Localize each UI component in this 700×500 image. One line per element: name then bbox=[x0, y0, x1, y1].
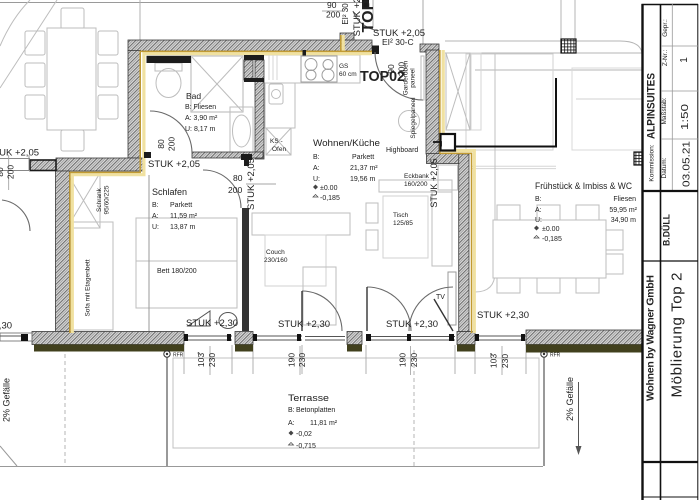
svg-text:A: 3,90 m²: A: 3,90 m² bbox=[185, 115, 218, 122]
svg-text:U:: U: bbox=[313, 176, 320, 183]
svg-text:U:: U: bbox=[152, 224, 159, 231]
svg-text:B:: B: bbox=[535, 196, 542, 203]
svg-text:Garderoben: Garderoben bbox=[403, 60, 410, 95]
svg-text:190: 190 bbox=[398, 353, 408, 367]
svg-text:ALPINSUITES: ALPINSUITES bbox=[646, 73, 658, 139]
svg-text:RFR: RFR bbox=[173, 353, 184, 359]
svg-text:EI² 30: EI² 30 bbox=[341, 3, 350, 25]
svg-text:59,95 m²: 59,95 m² bbox=[609, 207, 637, 214]
svg-text:-0,185: -0,185 bbox=[320, 195, 340, 202]
svg-text:Ofen: Ofen bbox=[272, 146, 286, 153]
svg-text:-0,02: -0,02 bbox=[296, 431, 312, 438]
svg-text:±0.00: ±0.00 bbox=[320, 185, 338, 192]
svg-text:RFR: RFR bbox=[550, 353, 561, 359]
svg-text:34,90 m: 34,90 m bbox=[611, 217, 636, 224]
svg-text:STUK +2,30: STUK +2,30 bbox=[386, 319, 438, 330]
svg-text:103̽: 103̽ bbox=[489, 353, 499, 368]
svg-text:1:50: 1:50 bbox=[679, 104, 691, 130]
svg-text:B:: B: bbox=[288, 407, 295, 414]
svg-text:230: 230 bbox=[409, 353, 419, 367]
svg-text:200: 200 bbox=[167, 137, 177, 151]
svg-text:paneel: paneel bbox=[410, 68, 417, 88]
svg-text:Tisch: Tisch bbox=[393, 212, 409, 219]
svg-text:2% Gefälle: 2% Gefälle bbox=[565, 377, 575, 421]
svg-text:230: 230 bbox=[500, 354, 510, 368]
svg-text:Z-Nr.:: Z-Nr.: bbox=[662, 50, 669, 66]
svg-text:80: 80 bbox=[233, 173, 243, 183]
svg-text:A:: A: bbox=[152, 213, 159, 220]
svg-text:Spiegelpaneel: Spiegelpaneel bbox=[410, 97, 417, 139]
svg-text:Parkett: Parkett bbox=[170, 202, 192, 209]
svg-text:STUK +2,30: STUK +2,30 bbox=[0, 321, 12, 332]
svg-text:230/160: 230/160 bbox=[264, 257, 288, 264]
svg-text:B.DÜLL: B.DÜLL bbox=[662, 214, 673, 246]
svg-text:A:: A: bbox=[313, 165, 320, 172]
svg-text:125/85: 125/85 bbox=[393, 220, 413, 227]
svg-text:13,87 m: 13,87 m bbox=[170, 224, 195, 231]
svg-text:STUK +2,05: STUK +2,05 bbox=[148, 159, 200, 170]
svg-text:103̽: 103̽ bbox=[196, 352, 206, 367]
svg-text:B:: B: bbox=[152, 202, 159, 209]
svg-text:GS: GS bbox=[339, 63, 349, 70]
svg-text:Sofa mit Etagenbett: Sofa mit Etagenbett bbox=[85, 259, 92, 316]
svg-text:Maßstab:: Maßstab: bbox=[661, 97, 668, 124]
svg-text:95/60/225: 95/60/225 bbox=[104, 185, 111, 214]
svg-text:EI² 30-C: EI² 30-C bbox=[382, 37, 414, 47]
svg-text:A:: A: bbox=[288, 420, 295, 427]
svg-text:80: 80 bbox=[0, 167, 5, 177]
svg-text:-0,185: -0,185 bbox=[542, 236, 562, 243]
svg-text:Couch: Couch bbox=[266, 249, 285, 256]
svg-text:11,59 m²: 11,59 m² bbox=[170, 213, 198, 220]
svg-text:Wohnen by Wagner GmbH: Wohnen by Wagner GmbH bbox=[645, 275, 657, 401]
svg-text:230: 230 bbox=[207, 353, 217, 367]
svg-text:Eckbank: Eckbank bbox=[404, 173, 430, 180]
svg-text:Wohnen/Küche: Wohnen/Küche bbox=[313, 138, 380, 148]
svg-text:STUK +2,30: STUK +2,30 bbox=[186, 318, 238, 329]
svg-text:U: 8,17 m: U: 8,17 m bbox=[185, 126, 216, 133]
svg-text:Terrasse: Terrasse bbox=[288, 393, 329, 403]
svg-text:TOP: TOP bbox=[360, 0, 377, 32]
svg-text:230: 230 bbox=[297, 353, 307, 367]
svg-text:80: 80 bbox=[156, 139, 166, 149]
svg-text:STUK +2,05: STUK +2,05 bbox=[429, 158, 439, 207]
svg-text:Kommission:: Kommission: bbox=[649, 144, 656, 181]
svg-text:90: 90 bbox=[386, 64, 396, 74]
svg-text:KS -: KS - bbox=[270, 138, 283, 145]
svg-text:-0,715: -0,715 bbox=[296, 443, 316, 450]
svg-text:STUK +2,30: STUK +2,30 bbox=[278, 319, 330, 330]
svg-text:U:: U: bbox=[535, 217, 542, 224]
svg-text:Betonplatten: Betonplatten bbox=[296, 407, 335, 414]
svg-text:±0.00: ±0.00 bbox=[542, 226, 560, 233]
svg-text:200: 200 bbox=[228, 185, 242, 195]
svg-text:Schrank: Schrank bbox=[96, 187, 103, 212]
svg-text:Gepr.:: Gepr.: bbox=[662, 19, 669, 37]
svg-text:60 cm: 60 cm bbox=[339, 71, 357, 78]
svg-text:Schlafen: Schlafen bbox=[152, 187, 187, 197]
svg-text:19,56 m: 19,56 m bbox=[350, 176, 375, 183]
svg-text:1: 1 bbox=[679, 57, 690, 63]
svg-text:STUK +2,05: STUK +2,05 bbox=[0, 148, 39, 159]
svg-text:Datum:: Datum: bbox=[661, 157, 668, 178]
svg-text:Frühstück & Imbiss & WC: Frühstück & Imbiss & WC bbox=[535, 181, 633, 191]
svg-text:A:: A: bbox=[535, 207, 542, 214]
svg-text:Fliesen: Fliesen bbox=[613, 196, 636, 203]
svg-text:200: 200 bbox=[6, 165, 16, 179]
svg-text:2% Gefälle: 2% Gefälle bbox=[2, 378, 12, 422]
svg-text:90: 90 bbox=[327, 0, 337, 10]
svg-text:Möblierung Top 2: Möblierung Top 2 bbox=[669, 273, 686, 398]
svg-text:03.05.21: 03.05.21 bbox=[681, 141, 693, 187]
svg-text:21,37 m²: 21,37 m² bbox=[350, 165, 378, 172]
svg-text:Highboard: Highboard bbox=[386, 147, 418, 154]
svg-text:160/200: 160/200 bbox=[404, 181, 428, 188]
svg-text:TV: TV bbox=[436, 294, 445, 301]
svg-text:190: 190 bbox=[287, 353, 297, 367]
svg-text:11,81 m²: 11,81 m² bbox=[310, 420, 338, 427]
svg-text:200: 200 bbox=[326, 10, 340, 20]
svg-text:Bad: Bad bbox=[186, 91, 201, 101]
svg-text:STUK +2,30: STUK +2,30 bbox=[477, 310, 529, 321]
svg-text:B:: B: bbox=[313, 154, 320, 161]
svg-text:Bett 180/200: Bett 180/200 bbox=[157, 268, 197, 275]
svg-text:B: Fliesen: B: Fliesen bbox=[185, 104, 216, 111]
svg-text:Parkett: Parkett bbox=[352, 154, 374, 161]
